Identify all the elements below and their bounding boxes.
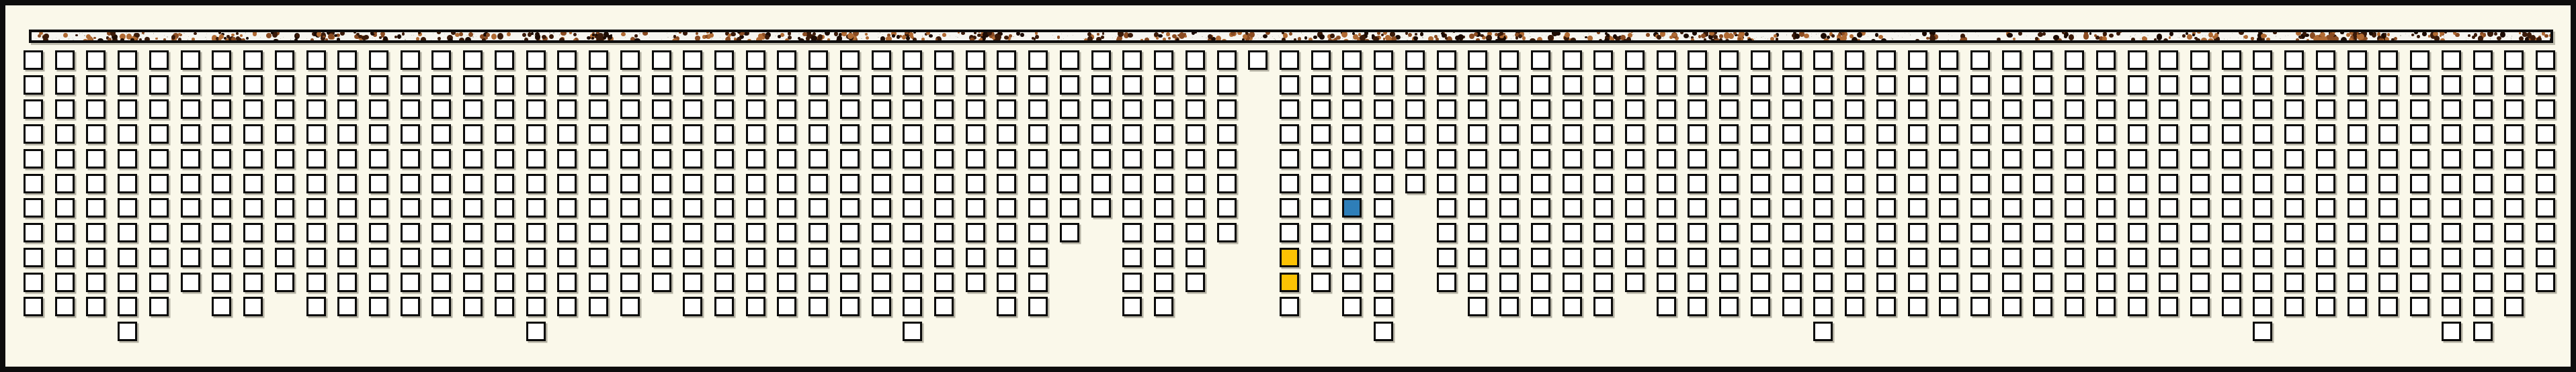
grid-cell[interactable] (1563, 124, 1582, 144)
grid-cell[interactable] (1531, 248, 1550, 267)
grid-cell[interactable] (1845, 75, 1864, 95)
grid-cell[interactable] (1374, 297, 1393, 316)
grid-cell[interactable] (2002, 174, 2022, 193)
grid-cell[interactable] (934, 198, 954, 218)
grid-cell[interactable] (1782, 297, 1802, 316)
grid-cell[interactable] (55, 273, 75, 292)
grid-cell[interactable] (652, 223, 671, 242)
grid-cell[interactable] (2222, 99, 2241, 119)
grid-cell[interactable] (966, 50, 985, 70)
grid-cell[interactable] (2504, 198, 2524, 218)
grid-cell[interactable] (463, 50, 483, 70)
grid-cell[interactable] (1122, 297, 1142, 316)
grid-cell[interactable] (840, 273, 860, 292)
grid-cell[interactable] (2473, 297, 2493, 316)
grid-cell[interactable] (652, 149, 671, 169)
grid-cell[interactable] (1593, 124, 1613, 144)
grid-cell[interactable] (840, 297, 860, 316)
grid-cell[interactable] (872, 99, 891, 119)
grid-cell[interactable] (966, 75, 985, 95)
grid-cell[interactable] (1970, 198, 1990, 218)
grid-cell[interactable] (401, 273, 420, 292)
grid-cell[interactable] (2504, 75, 2524, 95)
grid-cell[interactable] (306, 297, 326, 316)
grid-cell[interactable] (1091, 75, 1111, 95)
grid-cell[interactable] (2222, 50, 2241, 70)
grid-cell[interactable] (1217, 198, 1237, 218)
grid-cell[interactable] (557, 50, 577, 70)
grid-cell[interactable] (872, 248, 891, 267)
grid-cell[interactable] (337, 75, 357, 95)
grid-cell[interactable] (2159, 50, 2178, 70)
grid-cell[interactable] (1468, 174, 1487, 193)
grid-cell[interactable] (306, 273, 326, 292)
grid-cell[interactable] (1688, 75, 1707, 95)
grid-cell[interactable] (2159, 124, 2178, 144)
grid-cell[interactable] (1625, 149, 1645, 169)
grid-cell[interactable] (1908, 248, 1927, 267)
grid-cell[interactable] (1405, 50, 1425, 70)
grid-cell[interactable] (1374, 75, 1393, 95)
grid-cell[interactable] (1311, 124, 1331, 144)
grid-cell[interactable] (306, 75, 326, 95)
grid-cell[interactable] (1186, 248, 1205, 267)
grid-cell[interactable] (2190, 174, 2210, 193)
grid-cell[interactable] (2033, 99, 2052, 119)
grid-cell[interactable] (1499, 223, 1519, 242)
grid-cell[interactable] (1593, 50, 1613, 70)
grid-cell[interactable] (2128, 149, 2147, 169)
grid-cell[interactable] (1939, 99, 1958, 119)
grid-cell[interactable] (1154, 223, 1173, 242)
grid-cell[interactable] (1876, 174, 1896, 193)
grid-cell[interactable] (620, 223, 640, 242)
grid-cell[interactable] (934, 297, 954, 316)
grid-cell[interactable] (746, 50, 765, 70)
grid-cell[interactable] (2096, 223, 2116, 242)
grid-cell[interactable] (2378, 198, 2398, 218)
grid-cell[interactable] (1751, 50, 1770, 70)
grid-cell[interactable] (714, 174, 734, 193)
grid-cell[interactable] (1468, 99, 1487, 119)
grid-cell[interactable] (966, 149, 985, 169)
grid-cell[interactable] (2253, 75, 2272, 95)
grid-cell[interactable] (2316, 75, 2335, 95)
grid-cell[interactable] (997, 124, 1016, 144)
grid-cell[interactable] (557, 198, 577, 218)
grid-cell[interactable] (1563, 99, 1582, 119)
grid-cell[interactable] (2190, 149, 2210, 169)
grid-cell[interactable] (1845, 248, 1864, 267)
grid-cell[interactable] (1719, 50, 1739, 70)
grid-cell[interactable] (872, 174, 891, 193)
grid-cell[interactable] (557, 223, 577, 242)
grid-cell[interactable] (2128, 75, 2147, 95)
grid-cell[interactable] (777, 99, 796, 119)
grid-cell[interactable] (2536, 124, 2555, 144)
grid-cell[interactable] (2002, 248, 2022, 267)
grid-cell[interactable] (1437, 174, 1456, 193)
grid-cell[interactable] (55, 75, 75, 95)
grid-cell[interactable] (1751, 124, 1770, 144)
grid-cell[interactable] (212, 50, 231, 70)
grid-cell[interactable] (431, 223, 451, 242)
grid-cell[interactable] (2442, 174, 2461, 193)
grid-cell[interactable] (620, 124, 640, 144)
grid-cell[interactable] (2284, 198, 2304, 218)
grid-cell[interactable] (1186, 75, 1205, 95)
grid-cell[interactable] (1939, 223, 1958, 242)
grid-cell[interactable] (369, 50, 388, 70)
grid-cell[interactable] (1028, 149, 1048, 169)
grid-cell[interactable] (2128, 99, 2147, 119)
grid-cell[interactable] (966, 248, 985, 267)
grid-cell[interactable] (2159, 248, 2178, 267)
grid-cell[interactable] (495, 223, 514, 242)
grid-cell[interactable] (1751, 248, 1770, 267)
grid-cell[interactable] (2348, 174, 2367, 193)
grid-cell[interactable] (2190, 273, 2210, 292)
grid-cell[interactable] (1939, 174, 1958, 193)
grid-cell[interactable] (55, 149, 75, 169)
grid-cell[interactable] (777, 149, 796, 169)
grid-cell[interactable] (2316, 248, 2335, 267)
grid-cell[interactable] (1751, 223, 1770, 242)
grid-cell[interactable] (2410, 297, 2429, 316)
grid-cell[interactable] (86, 198, 106, 218)
grid-cell[interactable] (2002, 99, 2022, 119)
grid-cell[interactable] (2536, 149, 2555, 169)
grid-cell[interactable] (589, 149, 608, 169)
grid-cell[interactable] (118, 198, 137, 218)
grid-cell[interactable] (1499, 198, 1519, 218)
grid-cell[interactable] (2316, 223, 2335, 242)
grid-cell[interactable] (55, 99, 75, 119)
grid-cell[interactable] (2159, 297, 2178, 316)
grid-cell[interactable] (2096, 124, 2116, 144)
grid-cell[interactable] (2442, 297, 2461, 316)
grid-cell[interactable] (1405, 75, 1425, 95)
grid-cell[interactable] (212, 248, 231, 267)
grid-cell[interactable] (2316, 174, 2335, 193)
grid-cell[interactable] (2065, 174, 2084, 193)
grid-cell[interactable] (872, 198, 891, 218)
grid-cell[interactable] (212, 297, 231, 316)
grid-cell[interactable] (997, 273, 1016, 292)
grid-cell[interactable] (557, 248, 577, 267)
grid-cell[interactable] (2253, 174, 2272, 193)
grid-cell[interactable] (2378, 248, 2398, 267)
grid-cell[interactable] (1939, 75, 1958, 95)
grid-cell[interactable] (2253, 322, 2272, 341)
grid-cell[interactable] (1028, 248, 1048, 267)
grid-cell[interactable] (652, 248, 671, 267)
grid-cell[interactable] (1593, 174, 1613, 193)
grid-cell[interactable] (1028, 273, 1048, 292)
grid-cell[interactable] (243, 198, 263, 218)
grid-cell[interactable] (2253, 198, 2272, 218)
grid-cell[interactable] (2096, 75, 2116, 95)
grid-cell[interactable] (1374, 322, 1393, 341)
grid-cell[interactable] (808, 99, 828, 119)
grid-cell[interactable] (212, 223, 231, 242)
grid-cell[interactable] (589, 273, 608, 292)
grid-cell[interactable] (463, 75, 483, 95)
grid-cell[interactable] (903, 50, 922, 70)
grid-cell[interactable] (620, 50, 640, 70)
grid-cell[interactable] (2378, 297, 2398, 316)
grid-cell[interactable] (746, 149, 765, 169)
grid-cell[interactable] (1813, 174, 1833, 193)
grid-cell[interactable] (1437, 273, 1456, 292)
grid-cell[interactable] (589, 124, 608, 144)
grid-cell[interactable] (1531, 174, 1550, 193)
grid-cell[interactable] (1970, 174, 1990, 193)
grid-cell[interactable] (1468, 198, 1487, 218)
grid-cell[interactable] (714, 149, 734, 169)
grid-cell[interactable] (1970, 50, 1990, 70)
grid-cell[interactable] (1908, 273, 1927, 292)
grid-cell[interactable] (275, 198, 294, 218)
grid-cell[interactable] (1028, 75, 1048, 95)
grid-cell[interactable] (86, 297, 106, 316)
grid-cell[interactable] (1499, 273, 1519, 292)
grid-cell[interactable] (2096, 174, 2116, 193)
grid-cell[interactable] (431, 297, 451, 316)
grid-cell[interactable] (683, 273, 702, 292)
grid-cell[interactable] (243, 174, 263, 193)
grid-cell[interactable] (2096, 198, 2116, 218)
grid-cell[interactable] (872, 75, 891, 95)
grid-cell[interactable] (589, 198, 608, 218)
grid-cell[interactable] (1845, 223, 1864, 242)
grid-cell[interactable] (1657, 297, 1676, 316)
grid-cell[interactable] (1719, 273, 1739, 292)
grid-cell[interactable] (966, 223, 985, 242)
grid-cell[interactable] (777, 75, 796, 95)
grid-cell[interactable] (1876, 99, 1896, 119)
grid-cell[interactable] (2410, 149, 2429, 169)
grid-cell[interactable] (652, 124, 671, 144)
grid-cell[interactable] (337, 50, 357, 70)
grid-cell[interactable] (1593, 99, 1613, 119)
grid-cell[interactable] (2190, 198, 2210, 218)
grid-cell[interactable] (401, 248, 420, 267)
grid-cell[interactable] (1813, 273, 1833, 292)
grid-cell[interactable] (431, 75, 451, 95)
grid-cell[interactable] (997, 149, 1016, 169)
grid-cell[interactable] (526, 75, 546, 95)
grid-cell[interactable] (1499, 124, 1519, 144)
grid-cell[interactable] (1625, 75, 1645, 95)
grid-cell[interactable] (2284, 174, 2304, 193)
grid-cell[interactable] (463, 198, 483, 218)
grid-cell[interactable] (620, 198, 640, 218)
grid-cell[interactable] (1468, 248, 1487, 267)
grid-cell[interactable] (1342, 248, 1362, 267)
grid-cell[interactable] (1311, 198, 1331, 218)
grid-cell[interactable] (746, 75, 765, 95)
grid-cell[interactable] (714, 248, 734, 267)
grid-cell[interactable] (903, 149, 922, 169)
grid-cell[interactable] (86, 248, 106, 267)
grid-cell[interactable] (1782, 223, 1802, 242)
grid-cell[interactable] (1531, 50, 1550, 70)
grid-cell[interactable] (2348, 198, 2367, 218)
grid-cell[interactable] (1468, 124, 1487, 144)
grid-cell[interactable] (2065, 75, 2084, 95)
grid-cell[interactable] (306, 174, 326, 193)
grid-cell[interactable] (86, 124, 106, 144)
grid-cell[interactable] (589, 223, 608, 242)
grid-cell[interactable] (1374, 99, 1393, 119)
grid-cell[interactable] (495, 124, 514, 144)
grid-cell[interactable] (55, 248, 75, 267)
grid-cell[interactable] (1499, 149, 1519, 169)
grid-cell[interactable] (652, 174, 671, 193)
grid-cell[interactable] (149, 198, 169, 218)
grid-cell[interactable] (181, 149, 200, 169)
grid-cell[interactable] (1028, 198, 1048, 218)
grid-cell[interactable] (2284, 124, 2304, 144)
grid-cell[interactable] (275, 124, 294, 144)
grid-cell[interactable] (714, 50, 734, 70)
grid-cell[interactable] (840, 149, 860, 169)
grid-cell[interactable] (24, 75, 43, 95)
grid-cell[interactable] (86, 149, 106, 169)
grid-cell[interactable] (1657, 75, 1676, 95)
grid-cell[interactable] (118, 149, 137, 169)
grid-cell[interactable] (1311, 75, 1331, 95)
grid-cell[interactable] (118, 273, 137, 292)
grid-cell[interactable] (337, 99, 357, 119)
grid-cell[interactable] (1186, 50, 1205, 70)
grid-cell[interactable] (683, 174, 702, 193)
grid-cell[interactable] (1970, 124, 1990, 144)
grid-cell[interactable] (1060, 124, 1079, 144)
grid-cell[interactable] (2536, 174, 2555, 193)
grid-cell[interactable] (2473, 322, 2493, 341)
grid-cell[interactable] (463, 248, 483, 267)
grid-cell[interactable] (2410, 198, 2429, 218)
grid-cell[interactable] (526, 50, 546, 70)
grid-cell[interactable] (118, 174, 137, 193)
grid-cell[interactable] (1122, 124, 1142, 144)
grid-cell[interactable] (1688, 198, 1707, 218)
grid-cell[interactable] (526, 223, 546, 242)
grid-cell[interactable] (1563, 149, 1582, 169)
grid-cell[interactable] (1280, 223, 1299, 242)
grid-cell[interactable] (2190, 50, 2210, 70)
grid-cell[interactable] (840, 223, 860, 242)
grid-cell[interactable] (2442, 322, 2461, 341)
grid-cell[interactable] (1593, 75, 1613, 95)
grid-cell[interactable] (2316, 124, 2335, 144)
grid-cell[interactable] (2222, 174, 2241, 193)
grid-cell[interactable] (1186, 174, 1205, 193)
grid-cell[interactable] (2159, 174, 2178, 193)
grid-cell[interactable] (746, 174, 765, 193)
grid-cell[interactable] (683, 223, 702, 242)
grid-cell[interactable] (2159, 149, 2178, 169)
grid-cell[interactable] (1186, 99, 1205, 119)
grid-cell[interactable] (2253, 50, 2272, 70)
grid-cell[interactable] (243, 50, 263, 70)
grid-cell[interactable] (2065, 198, 2084, 218)
grid-cell[interactable] (1217, 99, 1237, 119)
grid-cell[interactable] (1970, 149, 1990, 169)
grid-cell[interactable] (2473, 273, 2493, 292)
grid-cell[interactable] (1876, 124, 1896, 144)
grid-cell[interactable] (934, 99, 954, 119)
grid-cell[interactable] (2348, 297, 2367, 316)
grid-cell[interactable] (1091, 174, 1111, 193)
grid-cell[interactable] (2033, 248, 2052, 267)
grid-cell[interactable] (2410, 273, 2429, 292)
grid-cell[interactable] (181, 124, 200, 144)
grid-cell[interactable] (2316, 273, 2335, 292)
grid-cell[interactable] (683, 248, 702, 267)
grid-cell[interactable] (1813, 149, 1833, 169)
grid-cell[interactable] (526, 322, 546, 341)
grid-cell[interactable] (1782, 198, 1802, 218)
grid-cell[interactable] (1091, 99, 1111, 119)
grid-cell[interactable] (1217, 124, 1237, 144)
grid-cell[interactable] (401, 75, 420, 95)
grid-cell[interactable] (683, 124, 702, 144)
grid-cell[interactable] (243, 297, 263, 316)
grid-cell[interactable] (1813, 198, 1833, 218)
grid-cell[interactable] (1468, 223, 1487, 242)
grid-cell[interactable] (1437, 75, 1456, 95)
grid-cell[interactable] (1813, 297, 1833, 316)
grid-cell[interactable] (872, 50, 891, 70)
grid-cell[interactable] (2159, 99, 2178, 119)
grid-cell[interactable] (1657, 198, 1676, 218)
grid-cell[interactable] (369, 248, 388, 267)
grid-cell[interactable] (746, 99, 765, 119)
grid-cell[interactable] (1154, 99, 1173, 119)
grid-cell[interactable] (1908, 149, 1927, 169)
grid-cell[interactable] (2096, 248, 2116, 267)
grid-cell[interactable] (746, 273, 765, 292)
grid-cell[interactable] (1122, 273, 1142, 292)
grid-cell[interactable] (2442, 273, 2461, 292)
grid-cell[interactable] (275, 50, 294, 70)
grid-cell[interactable] (243, 99, 263, 119)
grid-cell[interactable] (2190, 248, 2210, 267)
grid-cell[interactable] (1311, 223, 1331, 242)
grid-cell[interactable] (683, 50, 702, 70)
grid-cell[interactable] (149, 149, 169, 169)
grid-cell[interactable] (306, 149, 326, 169)
grid-cell[interactable] (149, 50, 169, 70)
grid-cell[interactable] (337, 174, 357, 193)
grid-cell[interactable] (1186, 223, 1205, 242)
grid-cell[interactable] (1122, 223, 1142, 242)
grid-cell[interactable] (1280, 297, 1299, 316)
grid-cell[interactable] (431, 174, 451, 193)
grid-cell[interactable] (1751, 273, 1770, 292)
grid-cell[interactable] (1531, 198, 1550, 218)
grid-cell[interactable] (1122, 50, 1142, 70)
grid-cell[interactable] (1970, 75, 1990, 95)
grid-cell[interactable] (1813, 248, 1833, 267)
grid-cell[interactable] (1908, 174, 1927, 193)
grid-cell[interactable] (997, 50, 1016, 70)
grid-cell[interactable] (2065, 273, 2084, 292)
grid-cell[interactable] (181, 99, 200, 119)
